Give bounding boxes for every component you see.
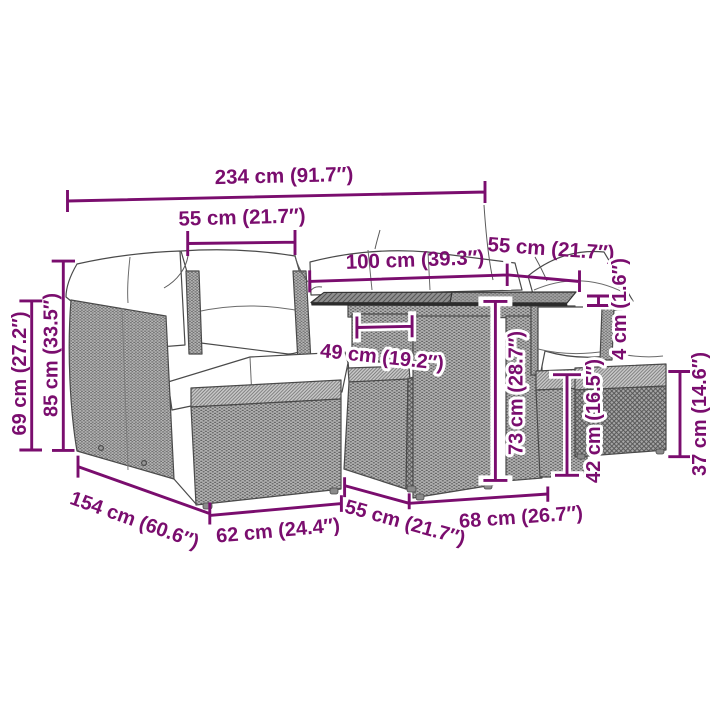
svg-text:42 cm (16.5″): 42 cm (16.5″) [583,359,605,483]
svg-text:69 cm (27.2″): 69 cm (27.2″) [9,311,31,435]
svg-text:37 cm (14.6″): 37 cm (14.6″) [689,352,711,476]
svg-text:4 cm (1.6″): 4 cm (1.6″) [609,258,631,360]
svg-text:85 cm (33.5″): 85 cm (33.5″) [41,293,63,417]
svg-text:100 cm (39.3″): 100 cm (39.3″) [345,246,484,274]
svg-text:73 cm (28.7″): 73 cm (28.7″) [506,331,528,455]
svg-text:234 cm (91.7″): 234 cm (91.7″) [214,163,353,189]
svg-text:55 cm (21.7″): 55 cm (21.7″) [178,204,306,230]
